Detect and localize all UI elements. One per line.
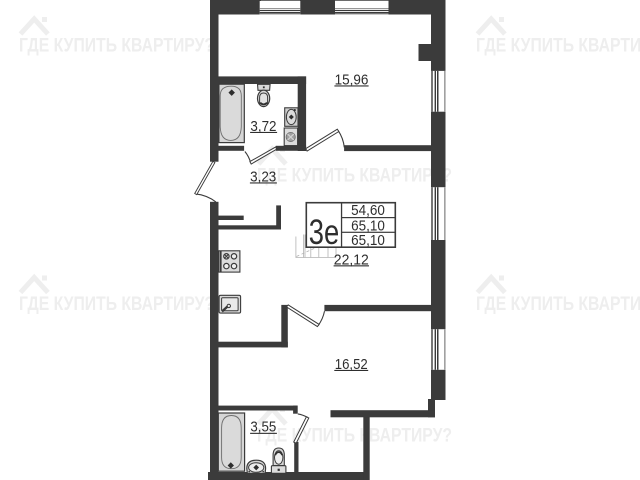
svg-text:65,10: 65,10 <box>351 233 385 249</box>
svg-text:3е: 3е <box>309 212 340 252</box>
svg-text:65,10: 65,10 <box>351 218 385 234</box>
svg-text:54,60: 54,60 <box>351 203 385 219</box>
